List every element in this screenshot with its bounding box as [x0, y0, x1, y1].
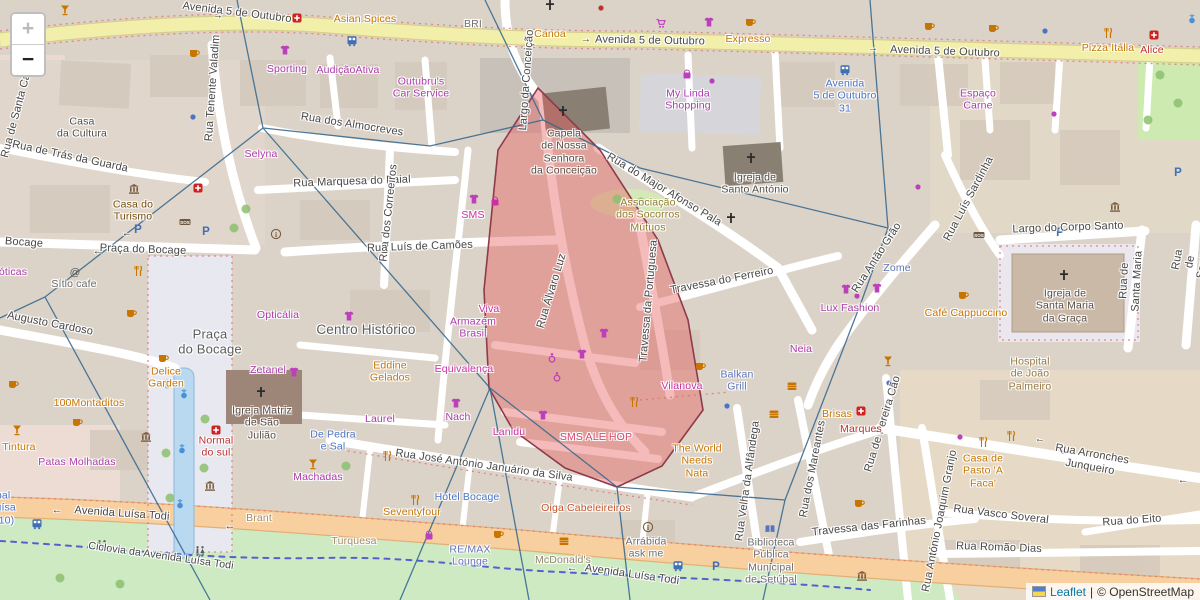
- parking-icon: [1056, 227, 1064, 239]
- burger-icon: [770, 411, 779, 419]
- arrow-label: ←: [52, 505, 62, 517]
- dot-icon: [598, 5, 603, 10]
- bank-icon: [857, 571, 867, 581]
- street-label: Rua Álvaro Luz: [534, 252, 569, 330]
- parking-icon: [134, 224, 142, 236]
- leaflet-link[interactable]: Leaflet: [1050, 585, 1086, 599]
- zoom-control: + −: [10, 12, 46, 77]
- shirt-icon: [452, 399, 461, 408]
- street-label: Rua José António Januário da Silva: [395, 447, 574, 485]
- poi-label: Arrábida ask me: [626, 536, 667, 561]
- tree-icon: [163, 380, 172, 389]
- poi-label: Avenida 5 de Outubro 31: [813, 77, 876, 114]
- poi-label: Igreja de Santo António: [721, 172, 788, 197]
- arrow-label: ←: [1178, 475, 1188, 487]
- poi-label: Seventyfour: [383, 506, 441, 518]
- parking-icon: [1174, 167, 1182, 179]
- poi-label: Normal do sul: [199, 435, 234, 460]
- pharmacy-icon: [212, 426, 221, 435]
- cup-icon: [959, 292, 968, 299]
- poi-label: De Pedra e Sal: [310, 429, 356, 454]
- bus-icon: [33, 519, 42, 529]
- tree-icon: [200, 464, 209, 473]
- arrow-label: →: [212, 10, 224, 23]
- poi-label: Brisas: [822, 408, 852, 420]
- cup-icon: [9, 381, 18, 388]
- glass-icon: [61, 6, 69, 16]
- bus-icon: [348, 36, 357, 46]
- poi-label: Café Cappuccino: [925, 307, 1008, 319]
- parking-icon: [202, 226, 210, 238]
- street-label: Largo do Corpo Santo: [1012, 220, 1124, 237]
- dot-icon: [854, 293, 859, 298]
- poi-label: My Linda Shopping: [665, 88, 711, 113]
- poi-label: Turquesa: [331, 535, 376, 547]
- cross-icon: [747, 153, 755, 163]
- street-label: Rua Luís Sardinha: [941, 155, 996, 244]
- street-label: Rua Antão Grão: [850, 221, 905, 296]
- cross-icon: [257, 387, 265, 397]
- shirt-icon: [345, 312, 354, 321]
- poi-label: Hospital de João Palmeiro: [1009, 355, 1052, 392]
- poi-label: Marques: [840, 423, 882, 435]
- shirt-icon: [873, 284, 882, 293]
- fork-icon: [1008, 431, 1014, 441]
- poi-label: Nach: [445, 411, 470, 423]
- poi-label: Casa do Turismo: [113, 199, 153, 224]
- cart-icon: [657, 20, 666, 28]
- street-label: Travessa do Ferreiro: [669, 265, 774, 298]
- dot-icon: [1060, 448, 1065, 453]
- street-label: Rua do Major Afonso Pala: [604, 151, 723, 230]
- ukraine-flag-icon: [1032, 586, 1046, 597]
- dot-icon: [915, 184, 920, 189]
- dot-icon: [709, 78, 714, 83]
- dot-icon: [957, 434, 962, 439]
- at-icon: [70, 267, 81, 279]
- bank-icon: [205, 481, 215, 491]
- cross-icon: [546, 0, 554, 10]
- tree-icon: [56, 574, 65, 583]
- arrow-label: ←: [1034, 433, 1046, 446]
- place-label: Centro Histórico: [316, 322, 415, 338]
- ring-icon: [554, 372, 560, 381]
- tree-icon: [230, 224, 239, 233]
- dot-icon: [724, 403, 729, 408]
- voronoi-lines: [0, 0, 888, 600]
- pharmacy-icon: [1150, 31, 1159, 40]
- street-label: Travessa da Portuguesa: [637, 239, 661, 362]
- cup-icon: [494, 531, 503, 538]
- shirt-icon: [281, 46, 290, 55]
- poi-label: 100Montaditos: [54, 397, 125, 409]
- shirt-icon: [842, 285, 851, 294]
- street-label: Avenida Luísa Todi: [74, 504, 170, 524]
- cup-icon: [855, 500, 864, 507]
- poi-label: Outubru's Car Service: [393, 76, 450, 101]
- poi-label: óticas: [0, 266, 27, 278]
- street-label: Rua Luís de Camões: [367, 239, 473, 256]
- street-label: Rua de Santa Maria: [1169, 244, 1200, 282]
- street-label: Avenida Luísa Todi: [584, 562, 680, 588]
- cross-icon: [559, 106, 567, 116]
- tree-icon: [1144, 116, 1153, 125]
- poi-label: RE/MAX Lounge: [449, 544, 490, 569]
- poi-label: Eddine Gelados: [370, 360, 410, 385]
- dot-icon: [886, 380, 891, 385]
- bus-icon: [841, 65, 850, 75]
- shirt-icon: [470, 195, 479, 204]
- arrow-label: ←: [93, 246, 103, 258]
- sos-icon: [180, 219, 191, 225]
- street-label: Rua de Trás da Guarda: [11, 138, 129, 175]
- poi-label: Lanidu: [493, 426, 525, 438]
- attribution-separator: |: [1090, 585, 1093, 599]
- poi-label: Vilanova: [661, 380, 702, 392]
- shirt-icon: [290, 368, 299, 377]
- cup-icon: [159, 355, 168, 362]
- poi-label: Hotel Bocage: [435, 491, 500, 503]
- map-labels-layer: Avenida 5 de OutubroAvenida 5 de Outubro…: [0, 0, 1200, 600]
- street-label: Augusto Cardoso: [6, 309, 94, 338]
- arrow-label: →: [581, 34, 591, 46]
- street-label: Rua de Santa Maria: [1116, 246, 1146, 316]
- arrow-label: →: [868, 43, 878, 55]
- shirt-icon: [578, 350, 587, 359]
- tree-icon: [1156, 71, 1165, 80]
- poi-label: Igreja Matriz de São Julião: [232, 404, 292, 441]
- tree-icon: [1174, 99, 1183, 108]
- street-label: Travessa das Farinhas: [811, 515, 926, 540]
- poi-label: Opticália: [257, 309, 299, 321]
- fork-icon: [384, 451, 390, 461]
- arrow-label: ←: [122, 228, 132, 240]
- poi-label: Pizza Itália: [1082, 42, 1135, 54]
- book-icon: [766, 525, 775, 532]
- poi-label: Neia: [790, 343, 812, 355]
- poi-label: Alice: [1140, 44, 1164, 56]
- fountain-icon: [179, 444, 185, 453]
- poi-label: BRI: [464, 18, 482, 30]
- poi-label: AudiçãoAtiva: [316, 64, 379, 76]
- shirt-icon: [539, 411, 548, 420]
- poi-label: Casa da Cultura: [57, 116, 107, 141]
- poi-label: Biblioteca Pública Municipal de Setúbal: [745, 536, 797, 586]
- tree-icon: [201, 415, 210, 424]
- street-label: Rua dos Mareantes: [797, 419, 829, 518]
- poi-label: Expresso: [726, 33, 771, 45]
- poi-label: The World Needs Nata: [672, 442, 722, 479]
- street-label: Largo da Conceição: [517, 29, 537, 131]
- shirt-icon: [600, 329, 609, 338]
- street-label: Rua Arronches Junqueiro: [1035, 439, 1147, 483]
- bag-icon: [684, 70, 691, 79]
- street-label: Bocage: [4, 235, 43, 251]
- poi-label: Sporting: [267, 63, 307, 75]
- tree-icon: [613, 195, 622, 204]
- ring-icon: [549, 353, 555, 362]
- street-label: Rua Tenente Valadim: [203, 34, 223, 142]
- bus-icon: [674, 561, 683, 571]
- fountain-icon: [177, 499, 183, 508]
- info-icon: [271, 229, 280, 238]
- poi-label: Machadas: [293, 471, 343, 483]
- poi-label: Igreja de Santa Maria da Graça: [1036, 287, 1094, 324]
- cup-icon: [190, 50, 199, 57]
- attribution-bar: Leaflet | © OpenStreetMap: [1026, 583, 1200, 600]
- dot-icon: [1051, 111, 1056, 116]
- tree-icon: [166, 494, 175, 503]
- wc-icon: [196, 546, 204, 556]
- poi-label: Equivalença: [435, 363, 494, 375]
- tree-icon: [637, 198, 646, 207]
- poi-label: Canoa: [534, 28, 566, 40]
- poi-label: Zetanel: [250, 364, 286, 376]
- street-label: Rua Romão Dias: [956, 540, 1042, 556]
- pharmacy-icon: [194, 184, 203, 193]
- poi-icons-layer: P SOS i @: [0, 0, 1200, 600]
- poi-label: Asian Spices: [334, 13, 397, 25]
- poi-label: Setúbal (Av. Luísa Todi 310): [0, 489, 16, 526]
- street-label: Rua do Eito: [1102, 512, 1162, 529]
- dot-icon: [1042, 28, 1047, 33]
- street-label: Rua de Pereira Cão: [862, 374, 904, 473]
- sos-icon: [974, 232, 985, 238]
- wc-icon: [98, 540, 106, 550]
- highlighted-region: [484, 88, 703, 487]
- zoom-out-button[interactable]: −: [12, 44, 44, 75]
- pharmacy-icon: [857, 407, 866, 416]
- map-tiles: [0, 0, 1200, 600]
- openstreetmap-link[interactable]: © OpenStreetMap: [1097, 585, 1194, 599]
- place-label: Praça do Bocage: [178, 327, 242, 358]
- fountain-icon: [1189, 14, 1195, 23]
- fork-icon: [1105, 28, 1111, 38]
- street-label: Rua Velha da Alfândega: [733, 420, 763, 542]
- poi-label: Oiga Cabeleireiros: [541, 502, 631, 514]
- bank-icon: [141, 432, 151, 442]
- info-icon: [643, 522, 652, 531]
- cup-icon: [746, 19, 755, 26]
- fork-icon: [135, 266, 141, 276]
- street-label: Rua Marquesa do Faial: [293, 173, 411, 190]
- zoom-in-button[interactable]: +: [12, 14, 44, 44]
- cup-icon: [989, 25, 998, 32]
- burger-icon: [788, 383, 797, 391]
- poi-label: Espaço Carne: [960, 88, 996, 113]
- poi-label: Balkan Grill: [720, 369, 753, 394]
- dot-icon: [190, 114, 195, 119]
- bag-icon: [426, 531, 433, 540]
- arrow-label: ←: [567, 563, 577, 575]
- cup-icon: [925, 23, 934, 30]
- street-label: Rua Vasco Soveral: [953, 503, 1050, 528]
- tree-icon: [162, 449, 171, 458]
- map[interactable]: P SOS i @ Avenida 5 de OutubroAvenida 5 …: [0, 0, 1200, 600]
- street-label: Avenida 5 de Outubro: [595, 34, 705, 49]
- cup-icon: [127, 310, 136, 317]
- tree-icon: [116, 580, 125, 589]
- glass-icon: [884, 357, 892, 367]
- street-label: Rua dos Almocreves: [300, 110, 404, 139]
- shirt-icon: [705, 18, 714, 27]
- poi-label: Laurel: [365, 413, 395, 425]
- fork-icon: [412, 495, 418, 505]
- poi-label: Zome: [883, 262, 910, 274]
- poi-label: McDonald's: [535, 554, 591, 566]
- street-label: Rua António Joaquim Granjo: [920, 449, 960, 593]
- glass-icon: [309, 460, 317, 470]
- tree-icon: [242, 205, 251, 214]
- tree-icon: [342, 462, 351, 471]
- poi-label: Selyna: [244, 148, 277, 160]
- poi-label: Brant: [246, 512, 272, 524]
- bank-icon: [129, 184, 139, 194]
- parking-icon: [712, 561, 720, 573]
- cup-icon: [696, 363, 705, 370]
- poi-label: SMS ALE HOP: [560, 431, 632, 443]
- glass-icon: [13, 426, 21, 436]
- street-label: Avenida 5 de Outubro: [182, 0, 293, 26]
- street-label: Rua dos Correeiros: [377, 164, 400, 263]
- bag-icon: [492, 197, 499, 206]
- poi-label: Delice Garden: [148, 366, 184, 391]
- street-label: Praça do Bocage: [99, 242, 186, 258]
- street-label: Avenida 5 de Outubro: [890, 44, 1000, 61]
- fountain-icon: [181, 389, 187, 398]
- bank-icon: [1110, 202, 1120, 212]
- cross-icon: [727, 213, 735, 223]
- arrow-label: ←: [225, 521, 235, 533]
- poi-label: Lux Fashion: [821, 302, 880, 314]
- poi-label: Viva: [479, 303, 500, 315]
- poi-label: Armazém Brasil: [450, 316, 496, 341]
- fork-icon: [631, 397, 637, 407]
- poi-label: SMS: [461, 209, 484, 221]
- poi-label: Capela de Nossa Senhora da Conceição: [531, 127, 597, 177]
- cross-icon: [1060, 270, 1068, 280]
- pharmacy-icon: [293, 14, 302, 23]
- burger-icon: [560, 538, 569, 546]
- fork-icon: [980, 437, 986, 447]
- street-label: Ciclovia da Avenida Luísa Todi: [88, 540, 235, 573]
- poi-label: Tintura: [2, 441, 35, 453]
- poi-label: Patas Molhadas: [38, 456, 115, 468]
- poi-label: Casa de Pasto 'A Faca': [963, 452, 1003, 489]
- cup-icon: [73, 419, 82, 426]
- poi-label: Associação dos Socorros Mútuos: [616, 196, 680, 233]
- poi-label: Sítio cafe: [51, 278, 96, 290]
